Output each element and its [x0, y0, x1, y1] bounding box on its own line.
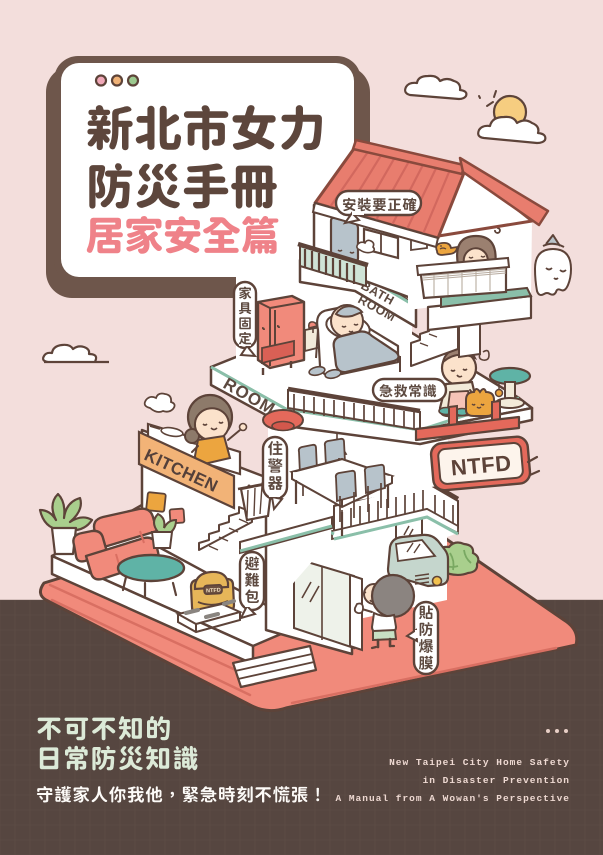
svg-text:in Disaster Prevention: in Disaster Prevention: [423, 775, 570, 786]
svg-text:New Taipei City Home Safety: New Taipei City Home Safety: [389, 757, 570, 768]
svg-text:A Manual from A Wowan's Perspe: A Manual from A Wowan's Perspective: [335, 793, 570, 804]
svg-text:NTFD: NTFD: [206, 588, 221, 595]
svg-text:NTFD: NTFD: [450, 450, 513, 480]
